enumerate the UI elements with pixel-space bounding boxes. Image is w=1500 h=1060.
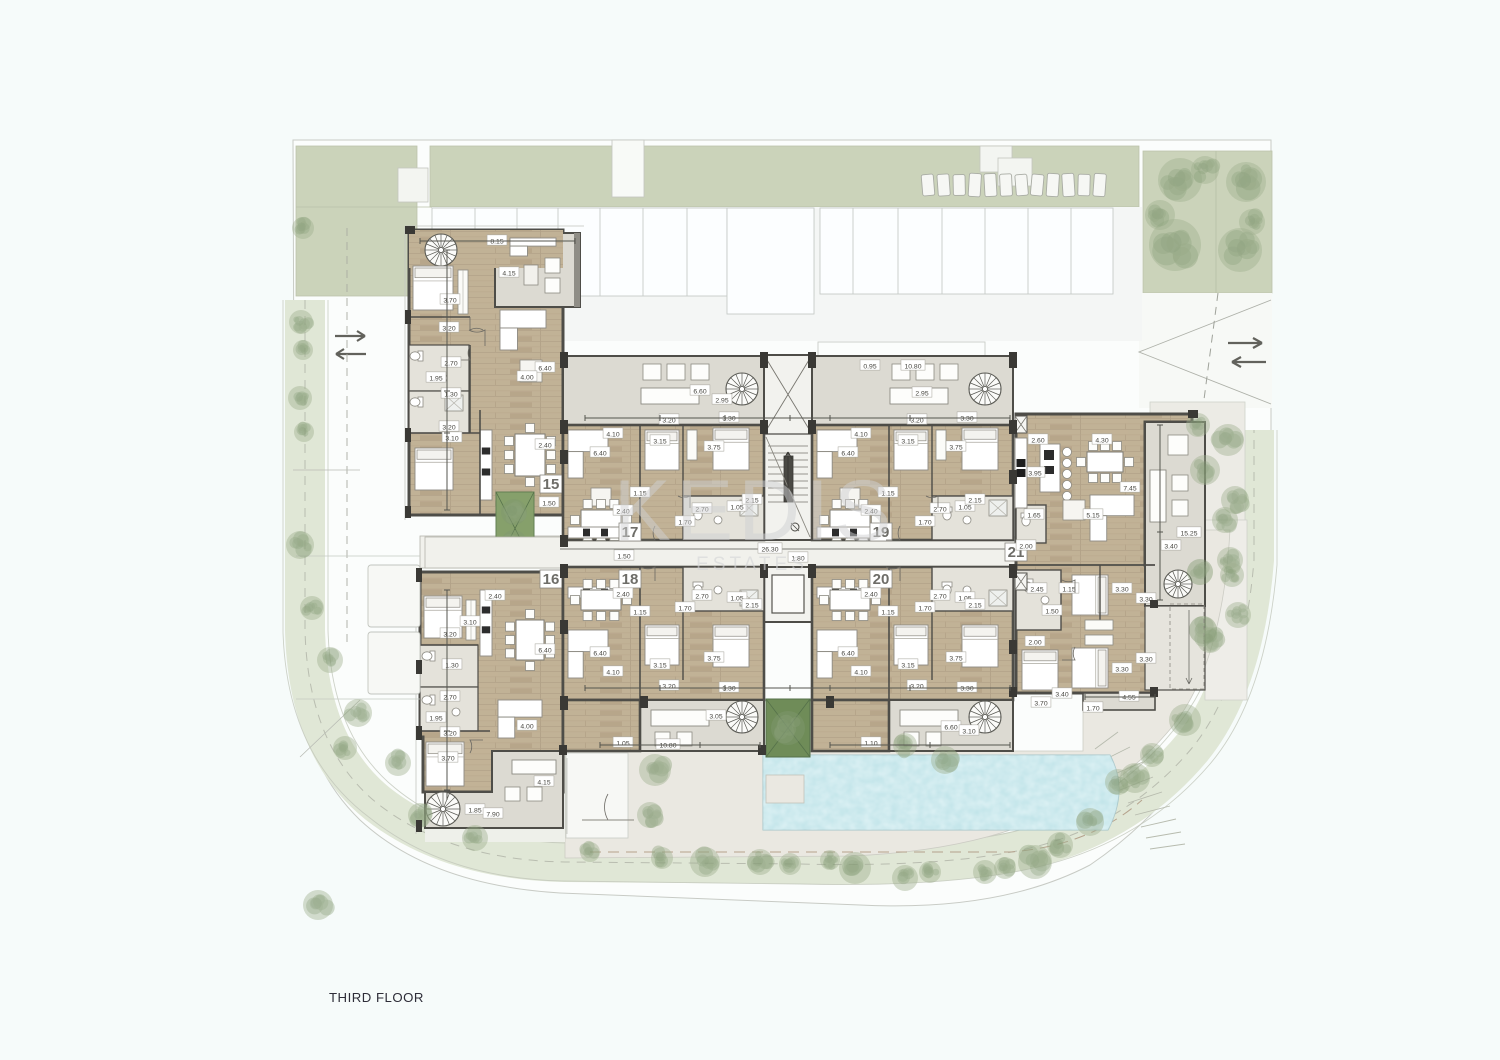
- svg-text:3.30: 3.30: [1115, 586, 1128, 593]
- svg-text:1.30: 1.30: [444, 391, 457, 398]
- svg-text:3.15: 3.15: [653, 662, 666, 669]
- svg-text:1.85: 1.85: [468, 807, 481, 814]
- svg-text:3.10: 3.10: [962, 728, 975, 735]
- svg-text:2.70: 2.70: [933, 593, 946, 600]
- svg-text:3.30: 3.30: [1139, 656, 1152, 663]
- svg-text:2.70: 2.70: [444, 360, 457, 367]
- svg-text:3.10: 3.10: [463, 619, 476, 626]
- svg-text:6.40: 6.40: [593, 450, 606, 457]
- svg-text:3.40: 3.40: [1164, 543, 1177, 550]
- svg-text:ESTATES: ESTATES: [696, 554, 808, 575]
- svg-text:1.95: 1.95: [429, 715, 442, 722]
- svg-text:2.40: 2.40: [616, 591, 629, 598]
- svg-text:2.15: 2.15: [968, 602, 981, 609]
- svg-text:6.40: 6.40: [841, 650, 854, 657]
- svg-text:3.95: 3.95: [1028, 470, 1041, 477]
- svg-text:2.40: 2.40: [538, 442, 551, 449]
- svg-text:7.90: 7.90: [486, 811, 499, 818]
- svg-text:2.40: 2.40: [864, 591, 877, 598]
- svg-text:1.15: 1.15: [881, 609, 894, 616]
- svg-text:10.80: 10.80: [904, 363, 921, 370]
- svg-text:4.55: 4.55: [1122, 694, 1135, 701]
- svg-text:1.10: 1.10: [864, 740, 877, 747]
- svg-text:16: 16: [543, 571, 560, 588]
- svg-text:3.15: 3.15: [901, 662, 914, 669]
- svg-text:3.30: 3.30: [722, 685, 735, 692]
- svg-text:2.70: 2.70: [695, 593, 708, 600]
- svg-text:3.20: 3.20: [662, 683, 675, 690]
- svg-text:1.05: 1.05: [958, 504, 971, 511]
- svg-text:6.40: 6.40: [538, 647, 551, 654]
- svg-text:1.50: 1.50: [542, 500, 555, 507]
- svg-text:1.15: 1.15: [633, 609, 646, 616]
- svg-text:4.10: 4.10: [606, 669, 619, 676]
- svg-text:4.15: 4.15: [537, 779, 550, 786]
- svg-text:THIRD FLOOR: THIRD FLOOR: [329, 990, 424, 1005]
- svg-text:1.15: 1.15: [1062, 586, 1075, 593]
- svg-text:2.95: 2.95: [715, 397, 728, 404]
- svg-text:10.80: 10.80: [659, 742, 676, 749]
- svg-text:1.05: 1.05: [616, 740, 629, 747]
- svg-text:2.00: 2.00: [1019, 543, 1032, 550]
- svg-text:1.70: 1.70: [918, 519, 931, 526]
- svg-text:20: 20: [873, 571, 890, 588]
- svg-text:1.70: 1.70: [678, 605, 691, 612]
- svg-text:6.40: 6.40: [593, 650, 606, 657]
- svg-text:0.95: 0.95: [863, 363, 876, 370]
- svg-text:2.60: 2.60: [1031, 437, 1044, 444]
- svg-text:3.05: 3.05: [709, 713, 722, 720]
- svg-text:4.10: 4.10: [854, 669, 867, 676]
- svg-text:KEDIS: KEDIS: [613, 463, 896, 559]
- svg-text:2.15: 2.15: [968, 497, 981, 504]
- svg-text:3.30: 3.30: [1115, 666, 1128, 673]
- svg-text:3.75: 3.75: [949, 444, 962, 451]
- svg-text:6.60: 6.60: [693, 388, 706, 395]
- svg-text:3.70: 3.70: [1034, 700, 1047, 707]
- svg-text:3.70: 3.70: [443, 297, 456, 304]
- svg-text:4.00: 4.00: [520, 723, 533, 730]
- svg-text:3.40: 3.40: [1055, 691, 1068, 698]
- svg-text:7.45: 7.45: [1123, 485, 1136, 492]
- svg-text:1.65: 1.65: [1027, 512, 1040, 519]
- svg-text:3.75: 3.75: [707, 655, 720, 662]
- svg-text:3.30: 3.30: [960, 415, 973, 422]
- svg-text:1.70: 1.70: [918, 605, 931, 612]
- svg-text:4.10: 4.10: [854, 431, 867, 438]
- svg-text:2.70: 2.70: [933, 506, 946, 513]
- svg-text:2.40: 2.40: [488, 593, 501, 600]
- svg-text:3.15: 3.15: [653, 438, 666, 445]
- svg-text:2.00: 2.00: [1028, 639, 1041, 646]
- svg-text:5.15: 5.15: [1086, 512, 1099, 519]
- svg-text:3.15: 3.15: [901, 438, 914, 445]
- svg-text:15: 15: [543, 476, 560, 493]
- svg-text:2.70: 2.70: [443, 694, 456, 701]
- svg-text:3.30: 3.30: [722, 415, 735, 422]
- svg-text:2.15: 2.15: [745, 602, 758, 609]
- svg-text:8.15: 8.15: [490, 238, 503, 245]
- svg-text:4.15: 4.15: [502, 270, 515, 277]
- svg-text:6.40: 6.40: [538, 365, 551, 372]
- svg-text:1.95: 1.95: [429, 375, 442, 382]
- svg-text:4.10: 4.10: [606, 431, 619, 438]
- svg-text:15.25: 15.25: [1180, 530, 1197, 537]
- svg-text:4.00: 4.00: [520, 374, 533, 381]
- svg-text:3.70: 3.70: [441, 755, 454, 762]
- svg-text:3.75: 3.75: [949, 655, 962, 662]
- svg-text:6.60: 6.60: [944, 724, 957, 731]
- svg-text:3.20: 3.20: [910, 683, 923, 690]
- svg-text:3.75: 3.75: [707, 444, 720, 451]
- svg-text:1.50: 1.50: [1045, 608, 1058, 615]
- svg-text:4.30: 4.30: [1095, 437, 1108, 444]
- svg-text:2.45: 2.45: [1030, 586, 1043, 593]
- svg-text:1.70: 1.70: [1086, 705, 1099, 712]
- svg-text:6.40: 6.40: [841, 450, 854, 457]
- svg-text:3.20: 3.20: [443, 631, 456, 638]
- svg-text:3.30: 3.30: [960, 685, 973, 692]
- svg-text:18: 18: [622, 571, 639, 588]
- svg-text:2.95: 2.95: [915, 390, 928, 397]
- svg-text:3.20: 3.20: [442, 325, 455, 332]
- svg-text:3.20: 3.20: [442, 424, 455, 431]
